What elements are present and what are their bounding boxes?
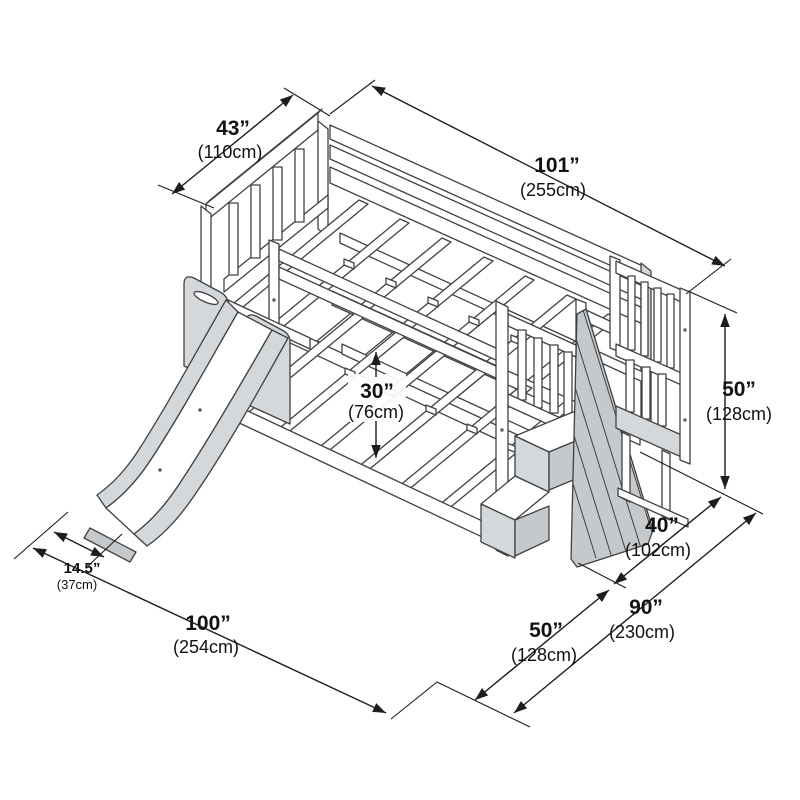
- dim-90-inches: 90”: [629, 596, 663, 619]
- dim-101-inches: 101”: [534, 154, 580, 177]
- dim-50b-inches: 50”: [529, 619, 563, 642]
- dim-43-cm: (110cm): [198, 142, 263, 162]
- dim-50b-cm: (128cm): [511, 645, 577, 665]
- dim-90-cm: (230cm): [609, 622, 675, 642]
- dim-101-cm: (255cm): [520, 180, 586, 200]
- dimension-bed-depth-50in: 50” (128cm): [391, 590, 609, 719]
- dim-30-cm: (76cm): [348, 402, 404, 422]
- dim-50r-cm: (128cm): [706, 404, 772, 424]
- dim-100-cm: (254cm): [173, 637, 239, 657]
- bunk-bed-illustration: [84, 109, 692, 567]
- dim-43-inches: 43”: [216, 117, 250, 140]
- dim-40-cm: (102cm): [625, 540, 691, 560]
- dim-100-inches: 100”: [185, 612, 231, 635]
- dim-50r-inches: 50”: [722, 378, 756, 401]
- dim-30-inches: 30”: [360, 380, 394, 403]
- dim-145-cm: (37cm): [57, 577, 97, 592]
- dim-145-inches: 14.5”: [64, 560, 101, 577]
- diagram-page: 43” (110cm) 101” (255cm) 50” (128cm) 30”…: [0, 0, 800, 800]
- dim-40-inches: 40”: [645, 514, 679, 537]
- dimension-length-with-slide-100in: 100” (254cm): [14, 512, 386, 713]
- bunk-bed-dimension-diagram: 43” (110cm) 101” (255cm) 50” (128cm) 30”…: [0, 0, 800, 800]
